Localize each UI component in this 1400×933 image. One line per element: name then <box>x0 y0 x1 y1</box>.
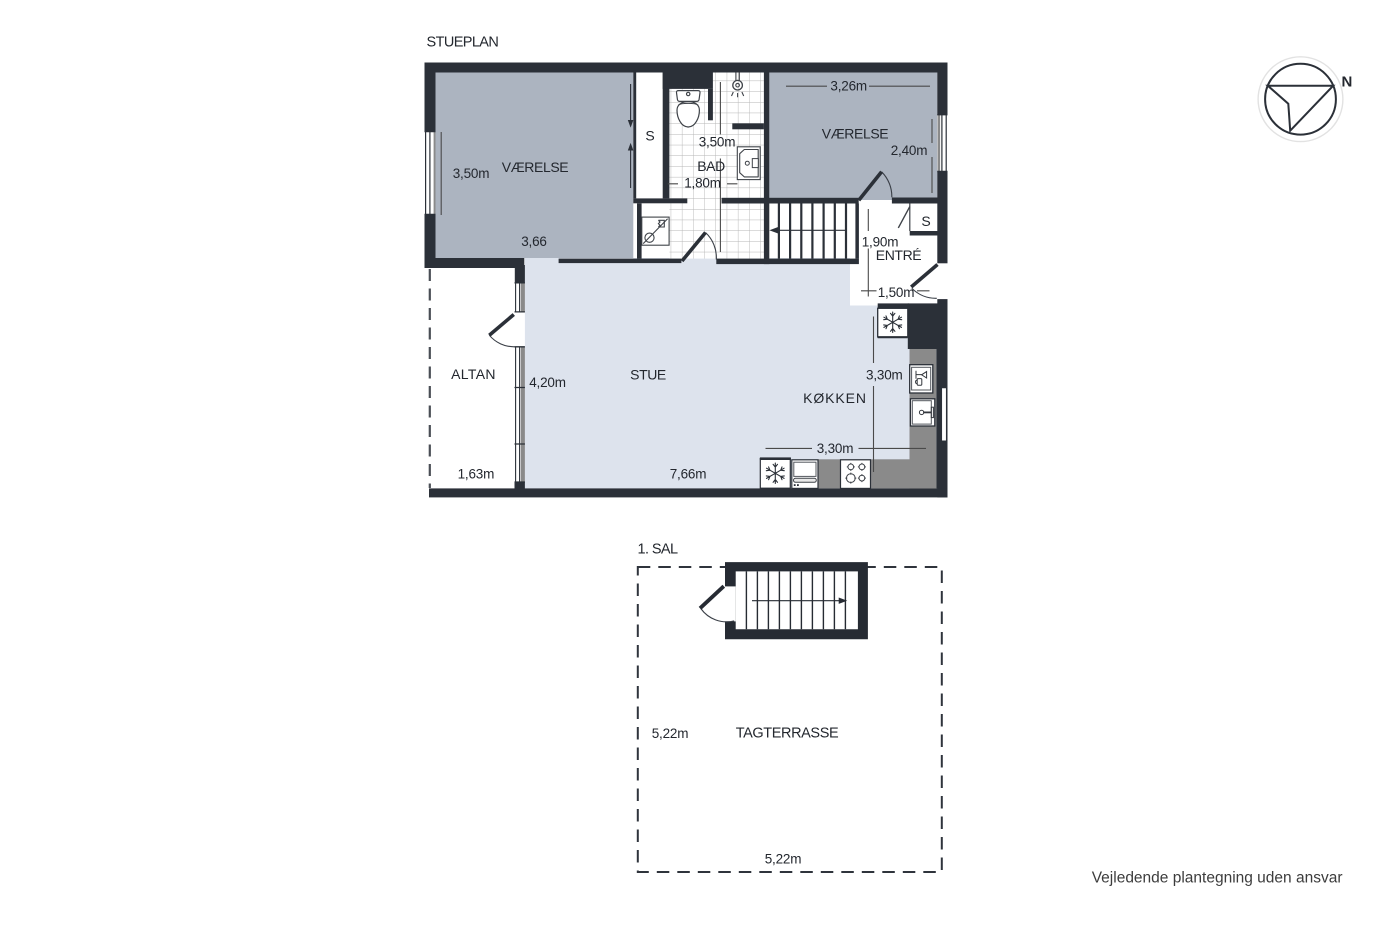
svg-text:ENTRÉ: ENTRÉ <box>876 247 922 263</box>
svg-text:1,63m: 1,63m <box>458 467 495 482</box>
svg-text:4,20m: 4,20m <box>529 375 566 390</box>
svg-text:1,80m: 1,80m <box>684 176 721 191</box>
svg-text:VÆRELSE: VÆRELSE <box>822 125 889 141</box>
svg-text:3,50m: 3,50m <box>699 135 736 150</box>
svg-text:3,26m: 3,26m <box>830 79 867 94</box>
svg-text:3,30m: 3,30m <box>866 368 903 383</box>
svg-text:TAGTERRASSE: TAGTERRASSE <box>736 726 839 742</box>
svg-text:N: N <box>1342 74 1353 91</box>
svg-text:ALTAN: ALTAN <box>451 366 496 382</box>
svg-text:3,50m: 3,50m <box>453 166 490 181</box>
svg-text:1,50m: 1,50m <box>878 285 915 300</box>
svg-text:VÆRELSE: VÆRELSE <box>502 159 569 175</box>
svg-text:1. SAL: 1. SAL <box>638 542 678 558</box>
svg-text:Vejledende plantegning uden an: Vejledende plantegning uden ansvar <box>1092 870 1343 887</box>
svg-text:S: S <box>921 213 930 229</box>
svg-text:BAD: BAD <box>697 158 725 174</box>
svg-text:3,66: 3,66 <box>521 234 546 249</box>
svg-text:STUEPLAN: STUEPLAN <box>427 35 499 51</box>
svg-text:KØKKEN: KØKKEN <box>803 390 867 406</box>
svg-text:2,40m: 2,40m <box>891 143 928 158</box>
svg-text:STUE: STUE <box>630 367 666 383</box>
svg-text:3,30m: 3,30m <box>817 441 854 456</box>
svg-text:5,22m: 5,22m <box>765 852 802 867</box>
svg-text:S: S <box>645 128 654 144</box>
svg-text:5,22m: 5,22m <box>652 726 689 741</box>
svg-text:7,66m: 7,66m <box>670 467 707 482</box>
